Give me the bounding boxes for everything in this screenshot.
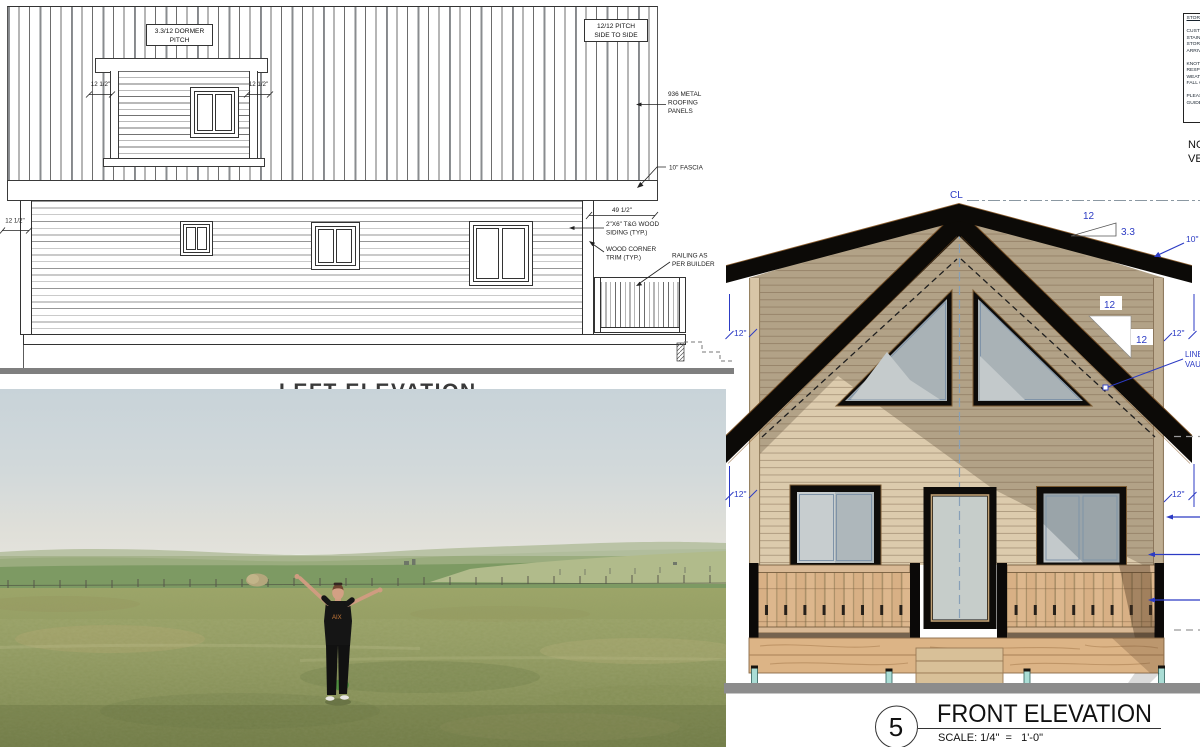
svg-text:RAILING AS: RAILING AS (672, 253, 708, 260)
svg-text:SIDING (TYP.): SIDING (TYP.) (606, 230, 647, 237)
svg-text:12": 12" (734, 489, 746, 499)
svg-text:5: 5 (889, 712, 903, 742)
svg-text:12": 12" (734, 328, 746, 338)
svg-text:12 1/2": 12 1/2" (249, 81, 268, 88)
svg-text:2"X6" T&G WOOD: 2"X6" T&G WOOD (606, 221, 659, 228)
svg-text:PER BUILDER: PER BUILDER (672, 261, 715, 268)
svg-text:LINE: LINE (1185, 350, 1200, 359)
svg-text:12": 12" (1172, 489, 1184, 499)
svg-text:936 METAL: 936 METAL (668, 91, 702, 98)
svg-text:49 1/2": 49 1/2" (612, 207, 632, 214)
svg-text:CL: CL (950, 190, 963, 201)
svg-text:12: 12 (1104, 300, 1116, 311)
svg-text:12: 12 (1083, 211, 1095, 222)
svg-text:12 1/2": 12 1/2" (91, 81, 110, 88)
svg-text:FRONT ELEVATION: FRONT ELEVATION (937, 700, 1152, 728)
svg-text:12": 12" (1172, 328, 1184, 338)
svg-text:10" FASCIA: 10" FASCIA (669, 165, 704, 172)
svg-text:WOOD CORNER: WOOD CORNER (606, 246, 656, 253)
svg-text:VAUL: VAUL (1185, 360, 1200, 369)
svg-text:SCALE: 1/4" = 1'-0": SCALE: 1/4" = 1'-0" (938, 732, 1043, 744)
svg-text:10": 10" (1186, 234, 1198, 244)
svg-text:3.3: 3.3 (1121, 227, 1135, 238)
svg-text:12: 12 (1136, 335, 1148, 346)
svg-text:PANELS: PANELS (668, 108, 693, 115)
svg-text:TRIM (TYP.): TRIM (TYP.) (606, 255, 641, 262)
svg-text:ROOFING: ROOFING (668, 100, 698, 107)
svg-text:12 1/2": 12 1/2" (5, 218, 24, 225)
